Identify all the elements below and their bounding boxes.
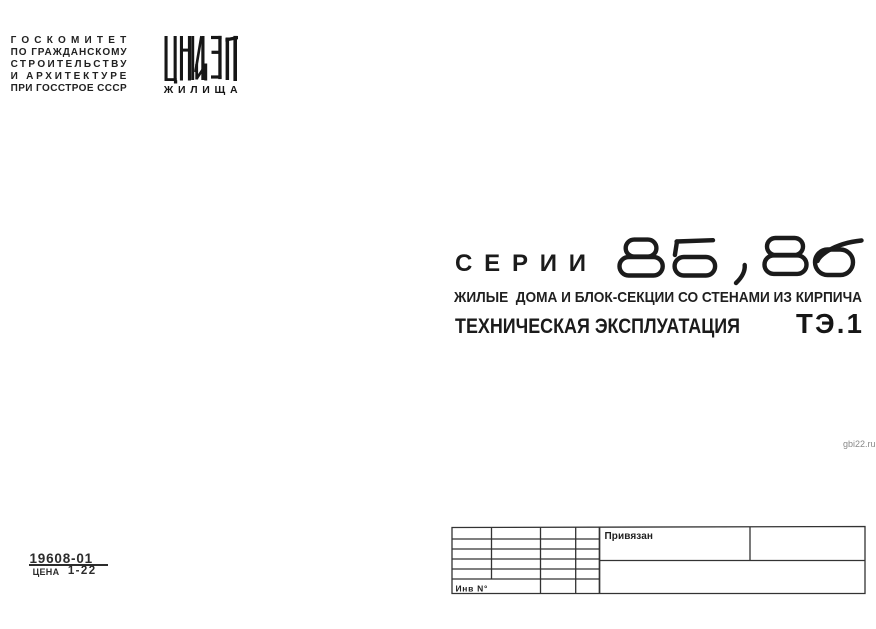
svg-text:Привязан: Привязан xyxy=(605,531,654,542)
svg-text:ЖИЛИЩА: ЖИЛИЩА xyxy=(163,84,241,95)
svg-text:Инв N°: Инв N° xyxy=(456,584,489,594)
